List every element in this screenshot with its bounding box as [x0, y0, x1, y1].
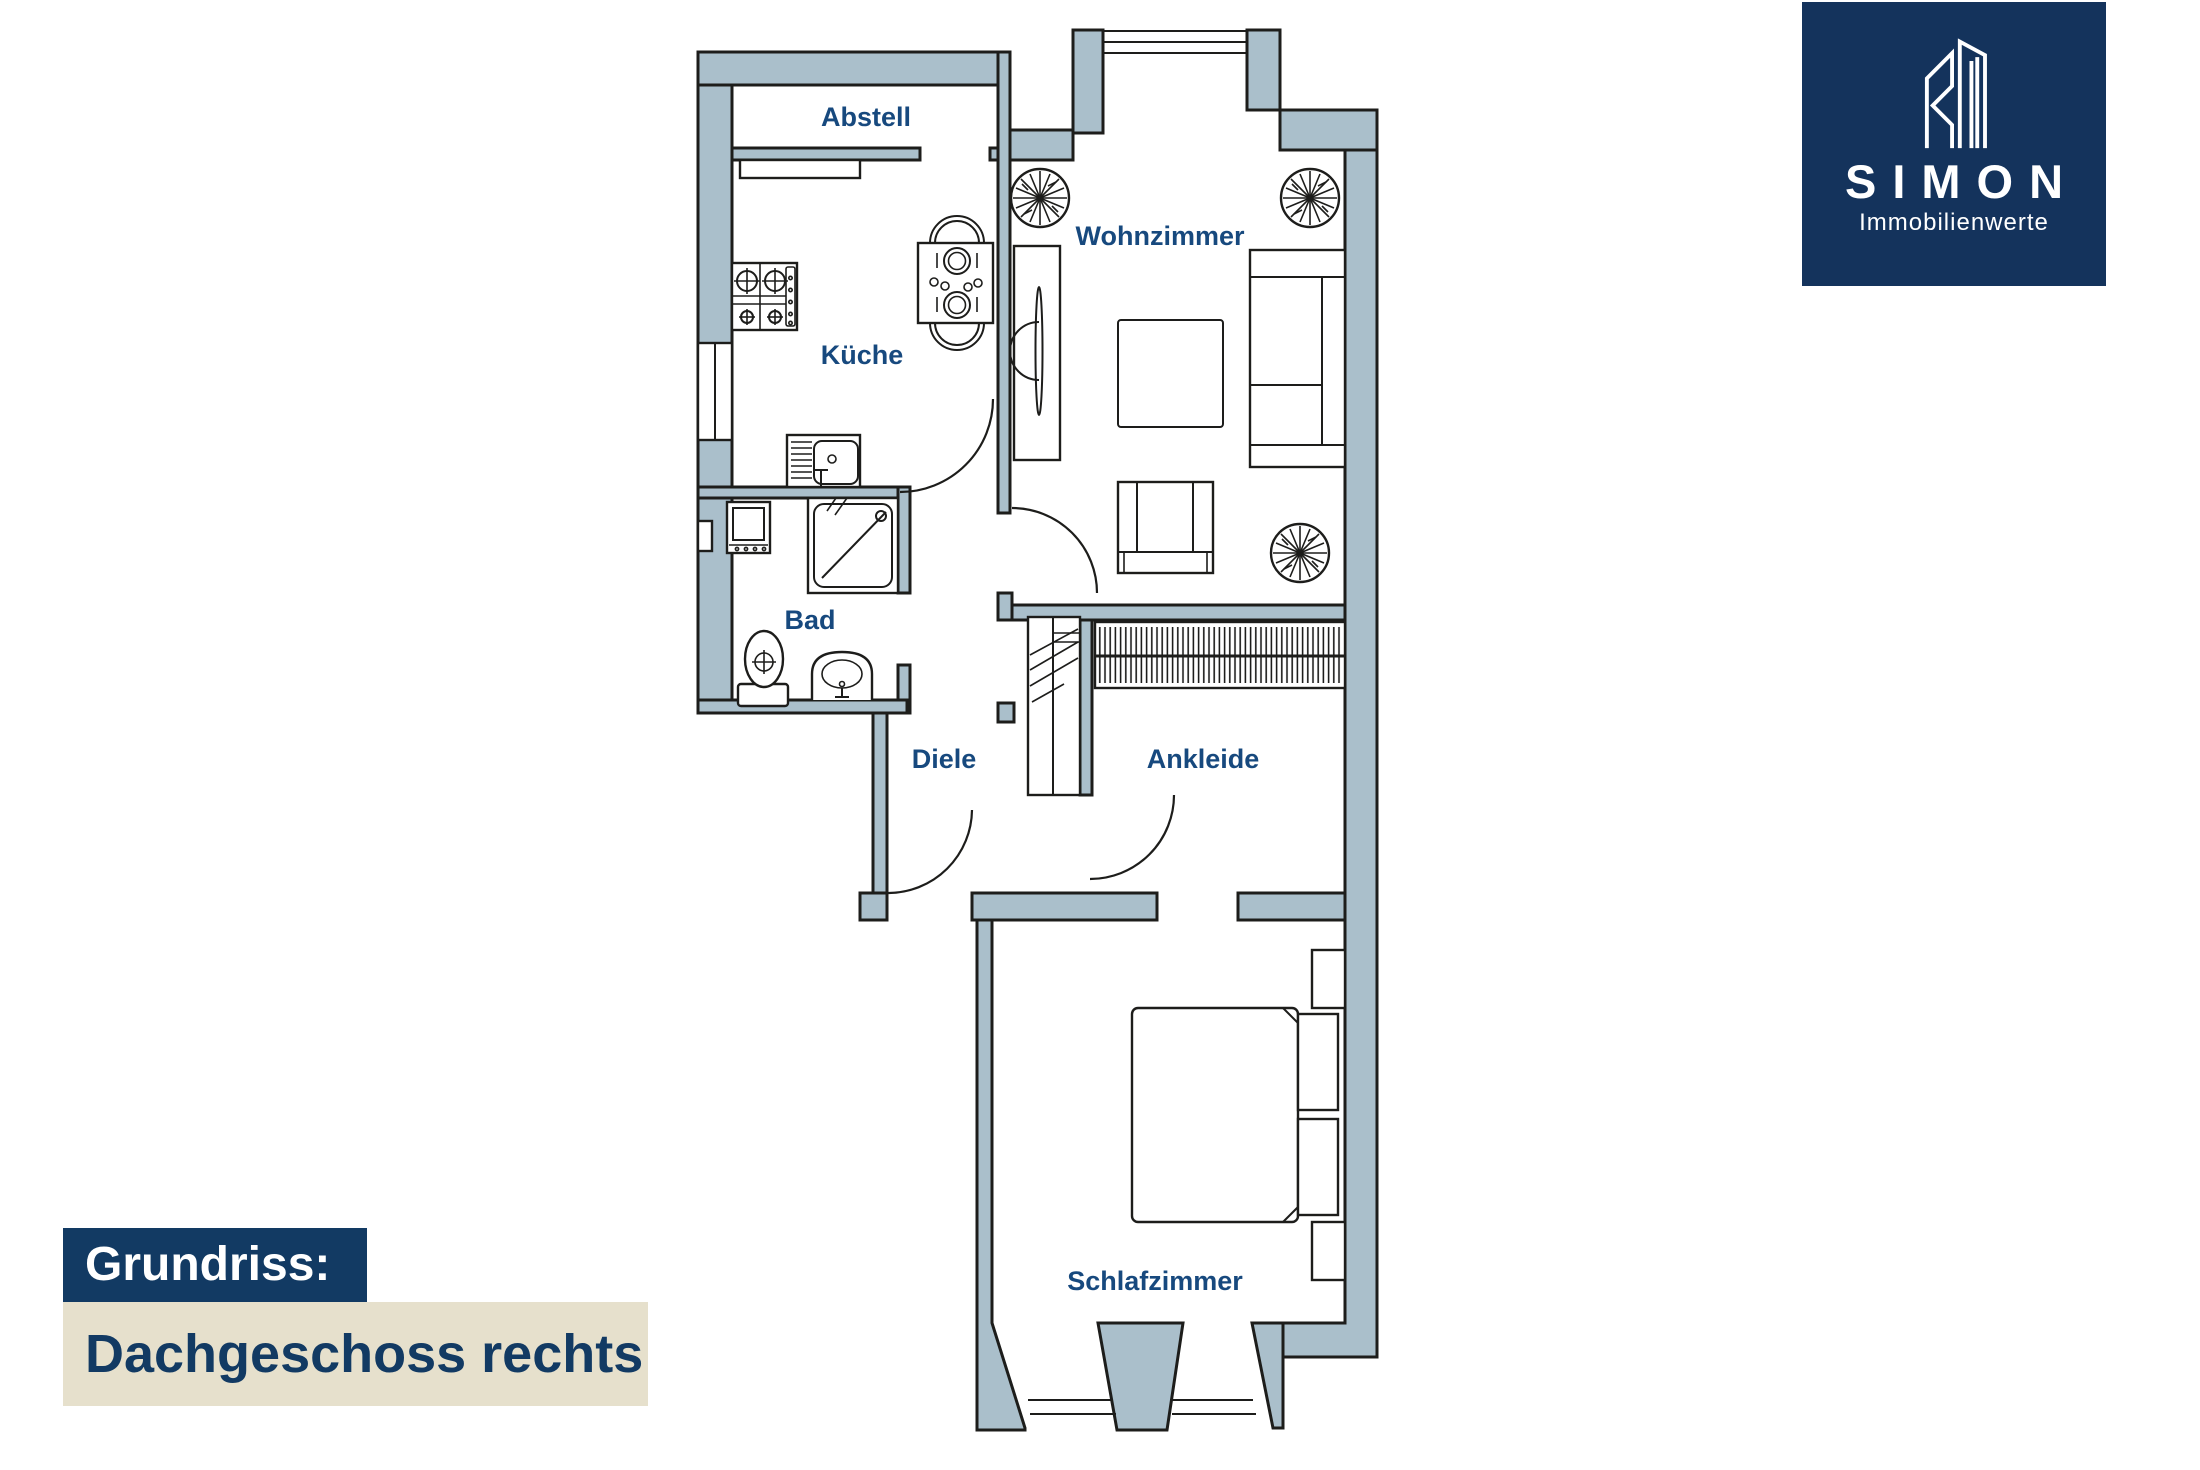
toilet — [738, 631, 788, 706]
nightstand-top — [1312, 950, 1345, 1008]
bedroom-dormer-window-right — [1170, 1400, 1256, 1414]
bathroom-window — [698, 521, 712, 551]
room-label-abstell: Abstell — [821, 102, 911, 132]
company-logo: SIMON Immobilienwerte — [1802, 2, 2106, 286]
logo-name: SIMON — [1829, 158, 2079, 205]
dining-table — [918, 216, 993, 350]
tv-sideboard — [1014, 246, 1060, 460]
floor-plan-page: Abstell Wohnzimmer Küche Bad Diele Ankle… — [0, 0, 2200, 1470]
living-room-dormer-window — [1103, 31, 1247, 53]
kitchen-stove — [732, 263, 797, 330]
shower — [808, 498, 898, 593]
bathroom-sink — [812, 652, 872, 700]
room-label-schlafzimmer: Schlafzimmer — [1067, 1266, 1243, 1296]
caption-title: Grundriss: — [63, 1228, 367, 1302]
washing-machine — [727, 502, 770, 553]
room-label-bad: Bad — [784, 605, 835, 635]
room-label-diele: Diele — [912, 744, 977, 774]
logo-subtitle: Immobilienwerte — [1859, 211, 2049, 235]
kitchen-window — [698, 343, 732, 440]
wardrobe — [1095, 622, 1345, 688]
nightstand-bottom — [1312, 1222, 1345, 1280]
sofa — [1250, 250, 1345, 467]
rug-table — [1118, 320, 1223, 427]
room-label-ankleide: Ankleide — [1147, 744, 1260, 774]
plant-living-room-left — [1011, 169, 1069, 227]
living-room-door-arc — [1012, 508, 1097, 593]
entrance-door-arc — [888, 810, 972, 893]
room-label-wohnzimmer: Wohnzimmer — [1075, 221, 1245, 251]
bed — [1132, 1008, 1338, 1222]
bedroom-dormer-window-left — [1028, 1400, 1116, 1414]
logo-building-icon — [1918, 28, 1990, 152]
staircase-block — [1028, 617, 1080, 795]
kitchen-counter — [740, 160, 860, 178]
dressing-room-door-arc — [1090, 795, 1174, 879]
kitchen-door-arc — [900, 399, 993, 492]
plant-living-room-right — [1281, 169, 1339, 227]
armchair — [1118, 482, 1213, 573]
kitchen-sink — [787, 435, 860, 487]
plant-living-room-bottom — [1271, 524, 1329, 582]
caption-subtitle: Dachgeschoss rechts — [63, 1302, 648, 1406]
room-label-kueche: Küche — [821, 340, 904, 370]
